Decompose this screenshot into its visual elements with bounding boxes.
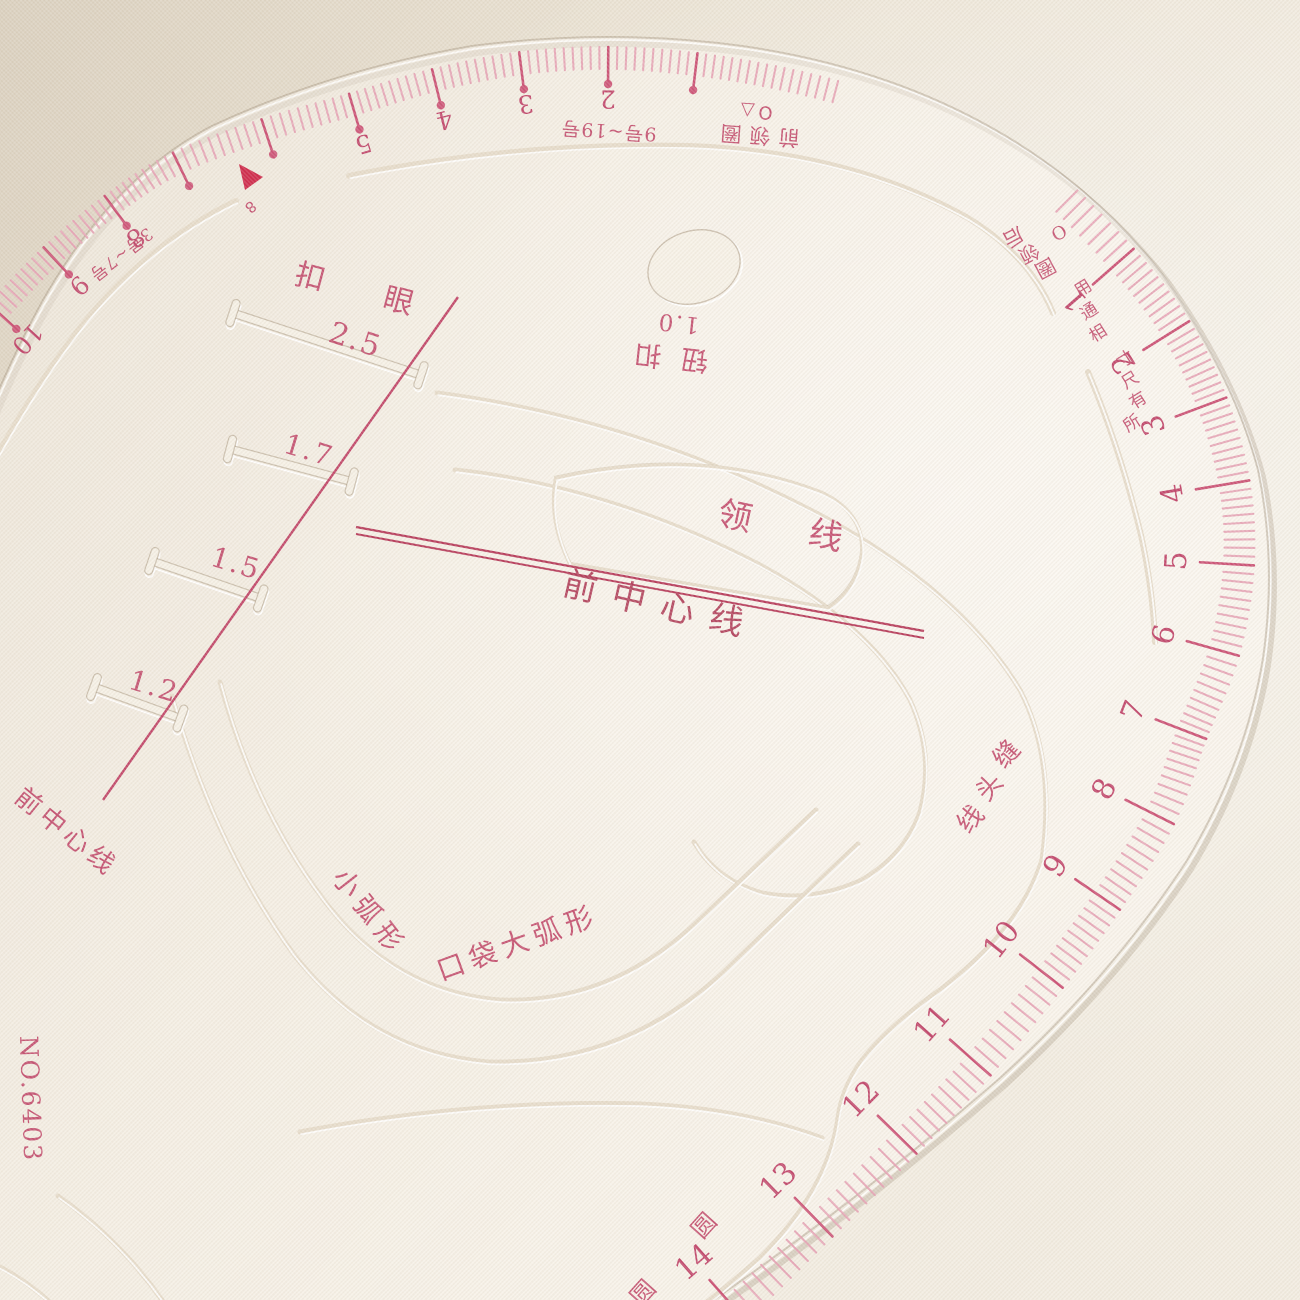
outer-scale-number: 2 — [600, 84, 616, 113]
button-size-label: 1.0 — [656, 308, 701, 338]
curve-ruler-photo: 109854321234567891011121314 扣 眼2.51.71.5… — [0, 0, 1300, 1300]
front-neckline-symbols-label: O△ — [736, 99, 773, 122]
photo-canvas: 109854321234567891011121314 扣 眼2.51.71.5… — [0, 0, 1300, 1300]
model-label-label: NO.6403 — [14, 1035, 47, 1162]
right-scale-number: 5 — [1158, 550, 1194, 571]
